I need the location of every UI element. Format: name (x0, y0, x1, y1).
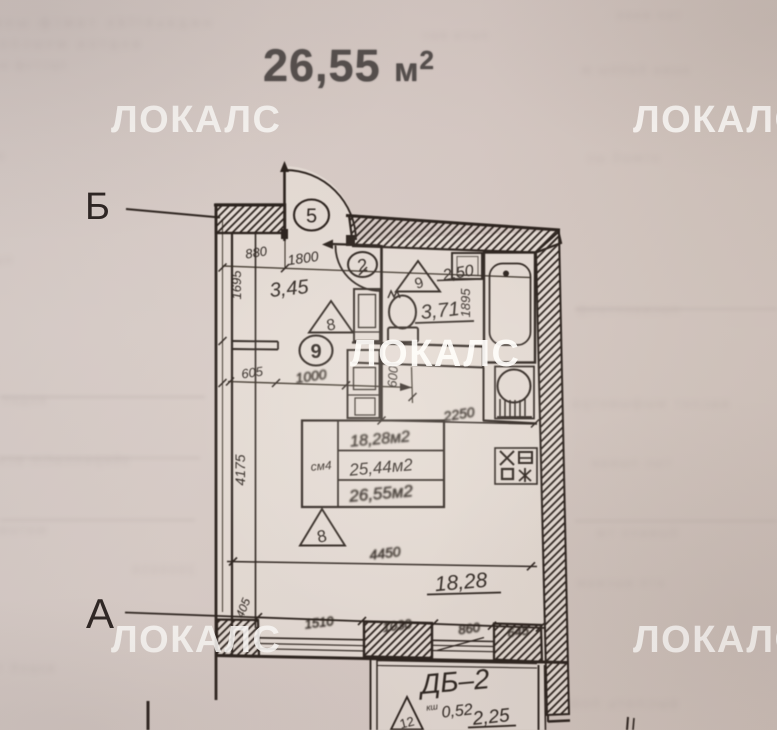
svg-text:645: 645 (506, 622, 530, 640)
svg-text:кш: кш (425, 701, 439, 713)
svg-text:605: 605 (240, 363, 264, 381)
svg-text:1695: 1695 (229, 270, 244, 300)
svg-text:ДБ–2: ДБ–2 (416, 663, 491, 700)
svg-text:0,52: 0,52 (441, 701, 474, 721)
svg-text:см4: см4 (310, 458, 332, 474)
svg-text:5: 5 (306, 206, 317, 228)
svg-text:18,28: 18,28 (434, 569, 489, 597)
svg-text:9: 9 (310, 341, 321, 363)
svg-text:3,45: 3,45 (269, 276, 311, 302)
svg-text:860: 860 (457, 619, 481, 637)
svg-text:3,71: 3,71 (420, 298, 461, 324)
svg-text:4175: 4175 (232, 454, 248, 485)
svg-text:1895: 1895 (458, 288, 473, 318)
